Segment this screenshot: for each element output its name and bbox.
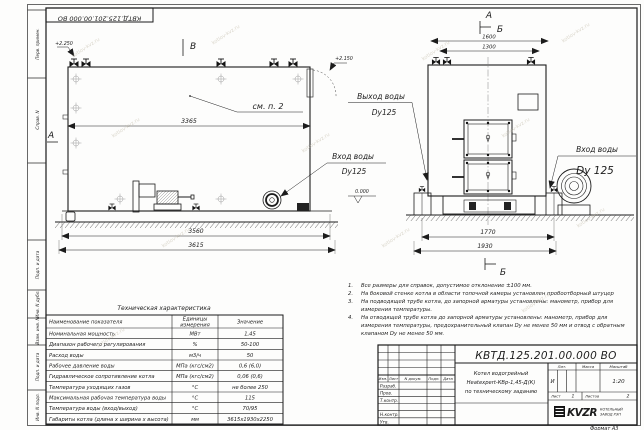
tb-sheets-value: 2 <box>627 394 630 400</box>
tech-cell: Рабочее давление воды <box>49 364 115 370</box>
note-text: На боковой стенке котла в области топочн… <box>361 291 638 299</box>
margin-labels: Перв. примен. Справ. N Подп. и дата Инв.… <box>35 28 40 421</box>
tb-col-list: Лист <box>388 377 399 381</box>
tb-row-utv: Утв. <box>380 419 389 424</box>
tech-cell: не более 250 <box>232 385 269 391</box>
notes-list: 1. Все размеры для справок, допустимое о… <box>348 283 638 339</box>
tech-header-unit2: измерения <box>180 323 210 329</box>
margin-label: Справ. N <box>35 110 40 130</box>
section-b-top: Б <box>497 25 503 35</box>
dim-3615: 3615 <box>188 242 203 249</box>
tech-cell: м3/ч <box>189 353 201 359</box>
doc-number: КВТД.125.201.00.000 ВО <box>475 350 617 362</box>
tb-lit-header: Лит. <box>557 364 567 369</box>
outlet-water-label: Выход воды <box>357 92 405 101</box>
note-item: 1. Все размеры для справок, допустимое о… <box>348 283 638 291</box>
side-view: В А +2.250 см. п. 2 3365 <box>47 39 386 254</box>
margin-label: Перв. примен. <box>35 28 40 59</box>
tech-cell: 115 <box>245 396 256 402</box>
tb-row-prov: Пров. <box>380 391 392 396</box>
upper-door <box>452 120 516 158</box>
tech-cell: 0,06 (0,6) <box>237 374 263 380</box>
dim-3560: 3560 <box>188 228 203 235</box>
tb-col-doc: N докум. <box>404 377 421 381</box>
inlet-water-dn-front: Dy 125 <box>576 165 614 177</box>
dim-1930: 1930 <box>477 243 492 250</box>
margin-label: Взам. инв. N <box>35 317 40 345</box>
outlet-water-dn: Dy125 <box>372 108 397 117</box>
company-name-1: КОТЕЛЬНЫЙ <box>600 407 623 412</box>
tb-row-razrab: Разраб. <box>380 384 396 389</box>
tech-cell: Номинальная мощность <box>49 332 115 338</box>
tb-sheet-value: 1 <box>572 394 575 400</box>
tech-cell: Расход воды <box>49 353 84 359</box>
tech-cell: 3615х1930х2250 <box>227 417 273 423</box>
top-stamp: КВТД.125.201.00.000 ВО <box>46 8 153 22</box>
margin-label: Подп. и дата <box>35 352 40 381</box>
drawing-sheet: Перв. примен. Справ. N Подп. и дата Инв.… <box>0 0 644 430</box>
inlet-water-dn: Dy125 <box>342 167 367 176</box>
dim-1770: 1770 <box>480 229 495 236</box>
tech-cell: МВт <box>189 332 201 338</box>
note-text: Все размеры для справок, допустимое откл… <box>361 283 638 291</box>
margin-label: Инв. N дубл. <box>35 290 40 317</box>
company-logo: KVZR КОТЕЛЬНЫЙ ЗАВОД РЭП <box>554 406 623 419</box>
water-inlet-flange <box>263 191 281 209</box>
elevation-front: +2.150 <box>335 56 353 62</box>
tech-cell: 0,6 (6,0) <box>239 364 261 370</box>
note-number: 1. <box>348 283 361 291</box>
tech-cell: МПа (кгс/см2) <box>176 374 214 380</box>
tb-description-2: Heatexpert-КВр-1,45-Д(К) <box>467 380 536 386</box>
tb-scale-value: 1:20 <box>612 379 625 385</box>
view-b-label: В <box>190 42 196 52</box>
tb-sheets-header: Листов <box>584 394 600 399</box>
margin-label: Инв. N подл. <box>35 393 40 421</box>
inlet-water-label-front: Вход воды <box>576 145 618 154</box>
see-note-label: см. п. 2 <box>253 102 284 111</box>
tb-description-1: Котел водогрейный <box>474 371 529 377</box>
note-number: 3. <box>348 299 361 315</box>
tech-header-name: Наименование показателя <box>49 320 122 326</box>
tb-description-3: по техническому заданию <box>465 389 538 395</box>
tech-cell: Температура уходящих газов <box>49 385 130 391</box>
note-text: На подводящей трубе котла, до запорной а… <box>361 299 638 315</box>
tech-table: Техническая характеристика Наименование … <box>46 305 283 424</box>
dim-3365: 3365 <box>181 118 197 125</box>
format-note: Формат А3 <box>590 426 618 430</box>
tech-cell: 70/95 <box>243 406 259 412</box>
tb-row-nkontr: Н.контр. <box>380 412 399 417</box>
note-item: 3. На подводящей трубе котла, до запорно… <box>348 299 638 315</box>
tech-cell: 1,45 <box>244 332 256 338</box>
logo-text: KVZR <box>567 407 597 419</box>
tb-row-tkontr: Т.контр. <box>380 398 398 403</box>
tech-cell: мм <box>191 417 199 423</box>
front-view: А Б 1600 1300 <box>330 11 636 278</box>
dim-1600: 1600 <box>482 35 496 41</box>
tech-cell: °С <box>192 406 199 412</box>
title-block: КВТД.125.201.00.000 ВО Изм. Лист N докум… <box>378 345 637 425</box>
note-number: 4. <box>348 315 361 339</box>
note-item: 4. На отводящей трубе котла до запорной … <box>348 315 638 339</box>
tech-cell: % <box>193 342 198 348</box>
inlet-water-label: Вход воды <box>332 152 374 161</box>
dim-1300: 1300 <box>482 45 496 51</box>
tech-cell: Максимальная рабочая температура воды <box>49 396 166 402</box>
section-b-bottom: Б <box>500 268 506 278</box>
tb-col-izm: Изм. <box>379 377 388 381</box>
tech-cell: МПа (кгс/см2) <box>176 364 214 370</box>
tech-cell: °С <box>192 385 199 391</box>
margin-label: Подп. и дата <box>35 250 40 279</box>
drawing-canvas: Перв. примен. Справ. N Подп. и дата Инв.… <box>0 0 644 430</box>
tech-cell: Гидравлическое сопротивление котла <box>49 374 155 380</box>
tb-col-data: Дата <box>442 377 453 381</box>
elevation-top-left: +2.250 <box>55 41 73 47</box>
tb-sheet-header: Лист <box>550 394 561 399</box>
tb-mass-header: Масса <box>582 364 595 369</box>
tech-cell: Габариты котла (длина х ширина х высота) <box>49 417 169 423</box>
tech-header-value: Значение <box>237 320 263 326</box>
tb-lit-value: И <box>551 379 555 385</box>
section-a-top: А <box>485 11 492 21</box>
tech-cell: Диапазон рабочего регулирования <box>48 342 145 348</box>
note-text: На отводящей трубе котла до запорной арм… <box>361 315 638 339</box>
section-a-label: А <box>47 131 54 141</box>
tb-scale-header: Масштаб <box>609 364 628 369</box>
tech-cell: 50-100 <box>241 342 260 348</box>
elevation-zero: 0.000 <box>355 189 369 195</box>
tech-cell: 50 <box>247 353 254 359</box>
top-stamp-number: КВТД.125.201.00.000 ВО <box>58 14 142 22</box>
tech-cell: °С <box>192 396 199 402</box>
lower-door <box>452 160 516 194</box>
note-number: 2. <box>348 291 361 299</box>
company-name-2: ЗАВОД РЭП <box>600 413 621 417</box>
tb-col-podp: Подп. <box>428 377 439 381</box>
note-item: 2. На боковой стенке котла в области топ… <box>348 291 638 299</box>
tech-cell: Температура воды (вход/выход) <box>49 406 138 412</box>
tech-table-title: Техническая характеристика <box>117 305 211 312</box>
